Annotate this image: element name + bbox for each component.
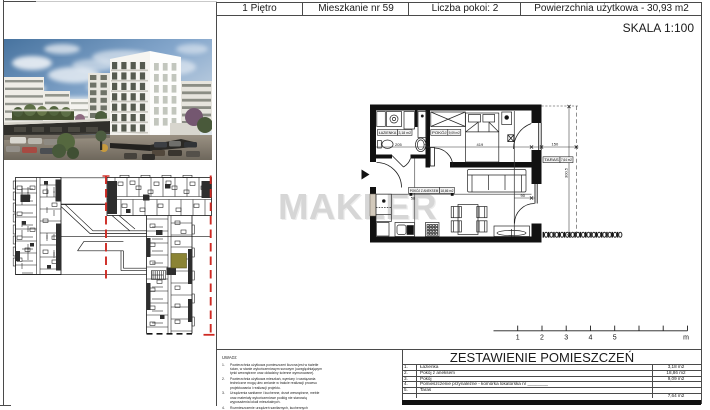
svg-text:TARAS: TARAS	[544, 158, 559, 162]
svg-text:150: 150	[552, 142, 559, 147]
svg-text:4: 4	[589, 335, 593, 342]
svg-text:3,18 m2: 3,18 m2	[399, 131, 412, 135]
svg-text:POKÓJ Z ANEKSEM: POKÓJ Z ANEKSEM	[410, 188, 439, 193]
svg-text:7,64 m2: 7,64 m2	[561, 158, 572, 162]
svg-text:205: 205	[395, 142, 402, 147]
svg-text:300.5: 300.5	[564, 167, 569, 178]
svg-text:18,86 m2: 18,86 m2	[441, 189, 454, 193]
svg-text:90: 90	[521, 193, 526, 198]
svg-text:58: 58	[411, 196, 416, 201]
svg-text:2: 2	[540, 335, 544, 342]
svg-text:ŁAZIENKA: ŁAZIENKA	[379, 131, 397, 135]
svg-text:9,09 m2: 9,09 m2	[449, 131, 460, 135]
svg-text:POKÓJ: POKÓJ	[432, 130, 447, 135]
svg-text:1: 1	[516, 335, 520, 342]
svg-text:m: m	[683, 335, 689, 342]
svg-text:5: 5	[613, 335, 617, 342]
svg-text:3: 3	[564, 335, 568, 342]
svg-text:419: 419	[477, 142, 484, 147]
